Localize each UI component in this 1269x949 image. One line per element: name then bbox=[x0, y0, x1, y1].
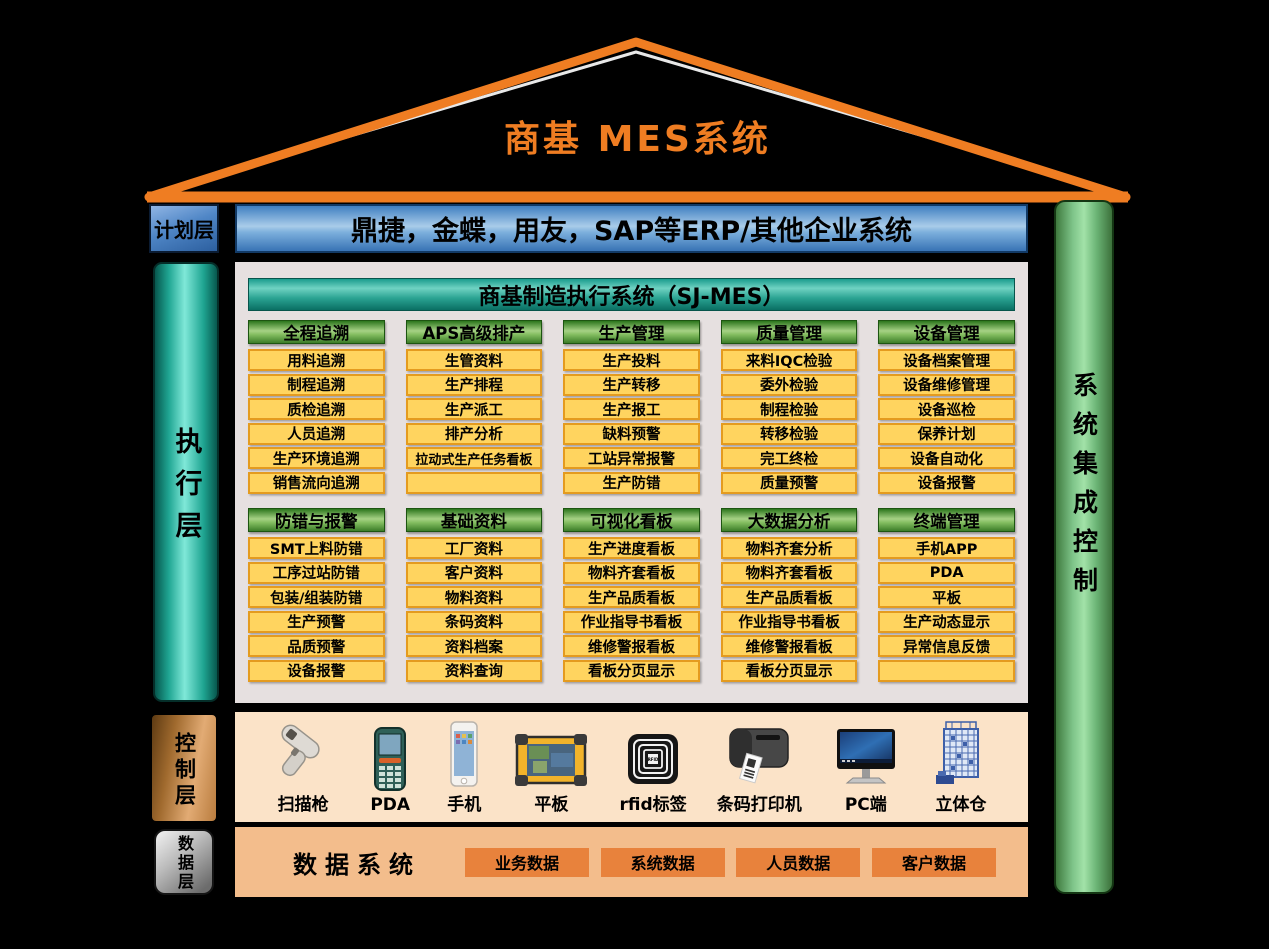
module-item: 条码资料 bbox=[406, 611, 543, 633]
pda-icon bbox=[365, 726, 415, 794]
layer-label-execution: 执行层 bbox=[153, 262, 219, 702]
data-box: 客户数据 bbox=[872, 848, 996, 877]
module-item: 用料追溯 bbox=[248, 349, 385, 371]
rugged-tablet-icon bbox=[513, 729, 589, 789]
module-item: 拉动式生产任务看板 bbox=[406, 447, 543, 469]
module-header: 终端管理 bbox=[878, 508, 1015, 532]
device-8: 立体仓 bbox=[930, 719, 992, 815]
layer-label-plan: 计划层 bbox=[149, 204, 219, 253]
smartphone-icon bbox=[445, 721, 483, 789]
module-item: 保养计划 bbox=[878, 423, 1015, 445]
data-box: 业务数据 bbox=[465, 848, 589, 877]
module-item: 作业指导书看板 bbox=[721, 611, 858, 633]
module-item: 异常信息反馈 bbox=[878, 635, 1015, 657]
layer-label-control: 控制层 bbox=[150, 713, 218, 823]
module-item: 设备维修管理 bbox=[878, 374, 1015, 396]
module-item: 手机APP bbox=[878, 537, 1015, 559]
device-label: 手机 bbox=[447, 790, 481, 815]
module-item: 质检追溯 bbox=[248, 398, 385, 420]
module-column-1-5: 设备管理设备档案管理设备维修管理设备巡检保养计划设备自动化设备报警 bbox=[878, 320, 1015, 496]
data-boxes: 业务数据系统数据人员数据客户数据 bbox=[465, 848, 996, 877]
module-item: 完工终检 bbox=[721, 447, 858, 469]
module-column-1-2: APS高级排产生管资料生产排程生产派工排产分析拉动式生产任务看板 bbox=[406, 320, 543, 496]
device-6: 条码打印机 bbox=[717, 719, 802, 815]
module-item: 销售流向追溯 bbox=[248, 472, 385, 494]
data-box: 系统数据 bbox=[601, 848, 725, 877]
module-header: 生产管理 bbox=[563, 320, 700, 344]
module-item: 生管资料 bbox=[406, 349, 543, 371]
erp-systems-bar-text: 鼎捷，金蝶，用友，SAP等ERP/其他企业系统 bbox=[351, 209, 912, 248]
module-item: 生产投料 bbox=[563, 349, 700, 371]
device-3: 手机 bbox=[445, 721, 483, 815]
module-item: 工站异常报警 bbox=[563, 447, 700, 469]
module-item: 作业指导书看板 bbox=[563, 611, 700, 633]
module-item: 制程追溯 bbox=[248, 374, 385, 396]
layer-label-execution-text: 执行层 bbox=[173, 412, 200, 553]
module-item: 设备报警 bbox=[878, 472, 1015, 494]
module-item: 制程检验 bbox=[721, 398, 858, 420]
barcode-printer-icon bbox=[720, 719, 798, 789]
module-header: 设备管理 bbox=[878, 320, 1015, 344]
device-7: PC端 bbox=[832, 725, 900, 815]
device-label: PDA bbox=[370, 795, 410, 815]
module-item: 看板分页显示 bbox=[563, 660, 700, 682]
module-column-1-4: 质量管理来料IQC检验委外检验制程检验转移检验完工终检质量预警 bbox=[721, 320, 858, 496]
module-header: 大数据分析 bbox=[721, 508, 858, 532]
module-item: 物料齐套看板 bbox=[563, 562, 700, 584]
mes-panel-title: 商基制造执行系统（SJ-MES） bbox=[248, 278, 1015, 311]
module-item: 质量预警 bbox=[721, 472, 858, 494]
module-column-2-5: 终端管理手机APPPDA平板生产动态显示异常信息反馈 bbox=[878, 508, 1015, 684]
module-item: 工序过站防错 bbox=[248, 562, 385, 584]
module-item: PDA bbox=[878, 562, 1015, 584]
svg-text:RFID: RFID bbox=[648, 757, 659, 762]
module-item-empty bbox=[406, 472, 543, 494]
system-integration-pillar-text: 系统集成控制 bbox=[1072, 202, 1097, 892]
module-item: 包装/组装防错 bbox=[248, 586, 385, 608]
diagram-title: 商基 MES系统 bbox=[150, 110, 1125, 162]
module-item: 转移检验 bbox=[721, 423, 858, 445]
layer-label-data-text: 数据层 bbox=[176, 832, 192, 892]
module-item: 生产排程 bbox=[406, 374, 543, 396]
module-item: 生产防错 bbox=[563, 472, 700, 494]
device-label: 条码打印机 bbox=[717, 790, 802, 815]
data-box: 人员数据 bbox=[736, 848, 860, 877]
module-item: 缺料预警 bbox=[563, 423, 700, 445]
module-item: 排产分析 bbox=[406, 423, 543, 445]
layer-label-data: 数据层 bbox=[154, 829, 214, 895]
module-item: 人员追溯 bbox=[248, 423, 385, 445]
module-header: 质量管理 bbox=[721, 320, 858, 344]
rfid-tag-icon: RFID bbox=[624, 729, 682, 789]
module-item: 物料齐套看板 bbox=[721, 562, 858, 584]
mes-panel: 商基制造执行系统（SJ-MES） 全程追溯用料追溯制程追溯质检追溯人员追溯生产环… bbox=[235, 262, 1028, 703]
module-header: 防错与报警 bbox=[248, 508, 385, 532]
module-item: 生产动态显示 bbox=[878, 611, 1015, 633]
device-2: PDA bbox=[365, 726, 415, 815]
pc-monitor-icon bbox=[832, 725, 900, 789]
erp-systems-bar: 鼎捷，金蝶，用友，SAP等ERP/其他企业系统 bbox=[235, 204, 1028, 253]
module-item: 委外检验 bbox=[721, 374, 858, 396]
module-item: 平板 bbox=[878, 586, 1015, 608]
module-item: 物料资料 bbox=[406, 586, 543, 608]
module-item: 生产派工 bbox=[406, 398, 543, 420]
module-item: 维修警报看板 bbox=[563, 635, 700, 657]
device-5: RFIDrfid标签 bbox=[619, 729, 686, 815]
module-column-2-3: 可视化看板生产进度看板物料齐套看板生产品质看板作业指导书看板维修警报看板看板分页… bbox=[563, 508, 700, 684]
module-column-1-3: 生产管理生产投料生产转移生产报工缺料预警工站异常报警生产防错 bbox=[563, 320, 700, 496]
module-item: 设备报警 bbox=[248, 660, 385, 682]
system-integration-pillar: 系统集成控制 bbox=[1054, 200, 1114, 894]
module-item: 资料查询 bbox=[406, 660, 543, 682]
device-label: PC端 bbox=[845, 790, 887, 815]
module-item: 品质预警 bbox=[248, 635, 385, 657]
mes-architecture-diagram: 商基 MES系统 计划层 鼎捷，金蝶，用友，SAP等ERP/其他企业系统 执行层… bbox=[0, 0, 1269, 949]
data-system-band: 数据系统 业务数据系统数据人员数据客户数据 bbox=[235, 827, 1028, 897]
module-item: 工厂资料 bbox=[406, 537, 543, 559]
module-item: 看板分页显示 bbox=[721, 660, 858, 682]
device-label: rfid标签 bbox=[619, 790, 686, 815]
control-device-band: 扫描枪PDA手机平板RFIDrfid标签条码打印机PC端立体仓 bbox=[235, 712, 1028, 822]
module-header: 全程追溯 bbox=[248, 320, 385, 344]
data-system-title: 数据系统 bbox=[293, 845, 421, 880]
layer-label-control-text: 控制层 bbox=[174, 727, 195, 810]
warehouse-icon bbox=[930, 719, 992, 789]
device-4: 平板 bbox=[513, 729, 589, 815]
device-1: 扫描枪 bbox=[271, 723, 335, 815]
module-item: 生产进度看板 bbox=[563, 537, 700, 559]
module-row-1: 全程追溯用料追溯制程追溯质检追溯人员追溯生产环境追溯销售流向追溯APS高级排产生… bbox=[248, 320, 1015, 496]
module-header: 可视化看板 bbox=[563, 508, 700, 532]
layer-label-plan-text: 计划层 bbox=[154, 214, 214, 243]
module-column-2-4: 大数据分析物料齐套分析物料齐套看板生产品质看板作业指导书看板维修警报看板看板分页… bbox=[721, 508, 858, 684]
module-item: 物料齐套分析 bbox=[721, 537, 858, 559]
mes-panel-title-text: 商基制造执行系统（SJ-MES） bbox=[479, 279, 785, 311]
module-item: SMT上料防错 bbox=[248, 537, 385, 559]
module-item: 生产预警 bbox=[248, 611, 385, 633]
module-item: 生产转移 bbox=[563, 374, 700, 396]
module-item: 资料档案 bbox=[406, 635, 543, 657]
module-header: 基础资料 bbox=[406, 508, 543, 532]
module-item: 维修警报看板 bbox=[721, 635, 858, 657]
module-item: 客户资料 bbox=[406, 562, 543, 584]
module-item: 生产报工 bbox=[563, 398, 700, 420]
device-label: 扫描枪 bbox=[278, 790, 329, 815]
module-item-empty bbox=[878, 660, 1015, 682]
module-item: 生产品质看板 bbox=[563, 586, 700, 608]
module-item: 生产品质看板 bbox=[721, 586, 858, 608]
module-row-2: 防错与报警SMT上料防错工序过站防错包装/组装防错生产预警品质预警设备报警基础资… bbox=[248, 508, 1015, 684]
module-column-2-2: 基础资料工厂资料客户资料物料资料条码资料资料档案资料查询 bbox=[406, 508, 543, 684]
module-item: 设备档案管理 bbox=[878, 349, 1015, 371]
module-header: APS高级排产 bbox=[406, 320, 543, 344]
module-column-1-1: 全程追溯用料追溯制程追溯质检追溯人员追溯生产环境追溯销售流向追溯 bbox=[248, 320, 385, 496]
module-item: 来料IQC检验 bbox=[721, 349, 858, 371]
module-item: 设备自动化 bbox=[878, 447, 1015, 469]
device-label: 平板 bbox=[534, 790, 568, 815]
module-item: 设备巡检 bbox=[878, 398, 1015, 420]
device-label: 立体仓 bbox=[935, 790, 986, 815]
barcode-scanner-icon bbox=[271, 723, 335, 789]
module-column-2-1: 防错与报警SMT上料防错工序过站防错包装/组装防错生产预警品质预警设备报警 bbox=[248, 508, 385, 684]
module-item: 生产环境追溯 bbox=[248, 447, 385, 469]
